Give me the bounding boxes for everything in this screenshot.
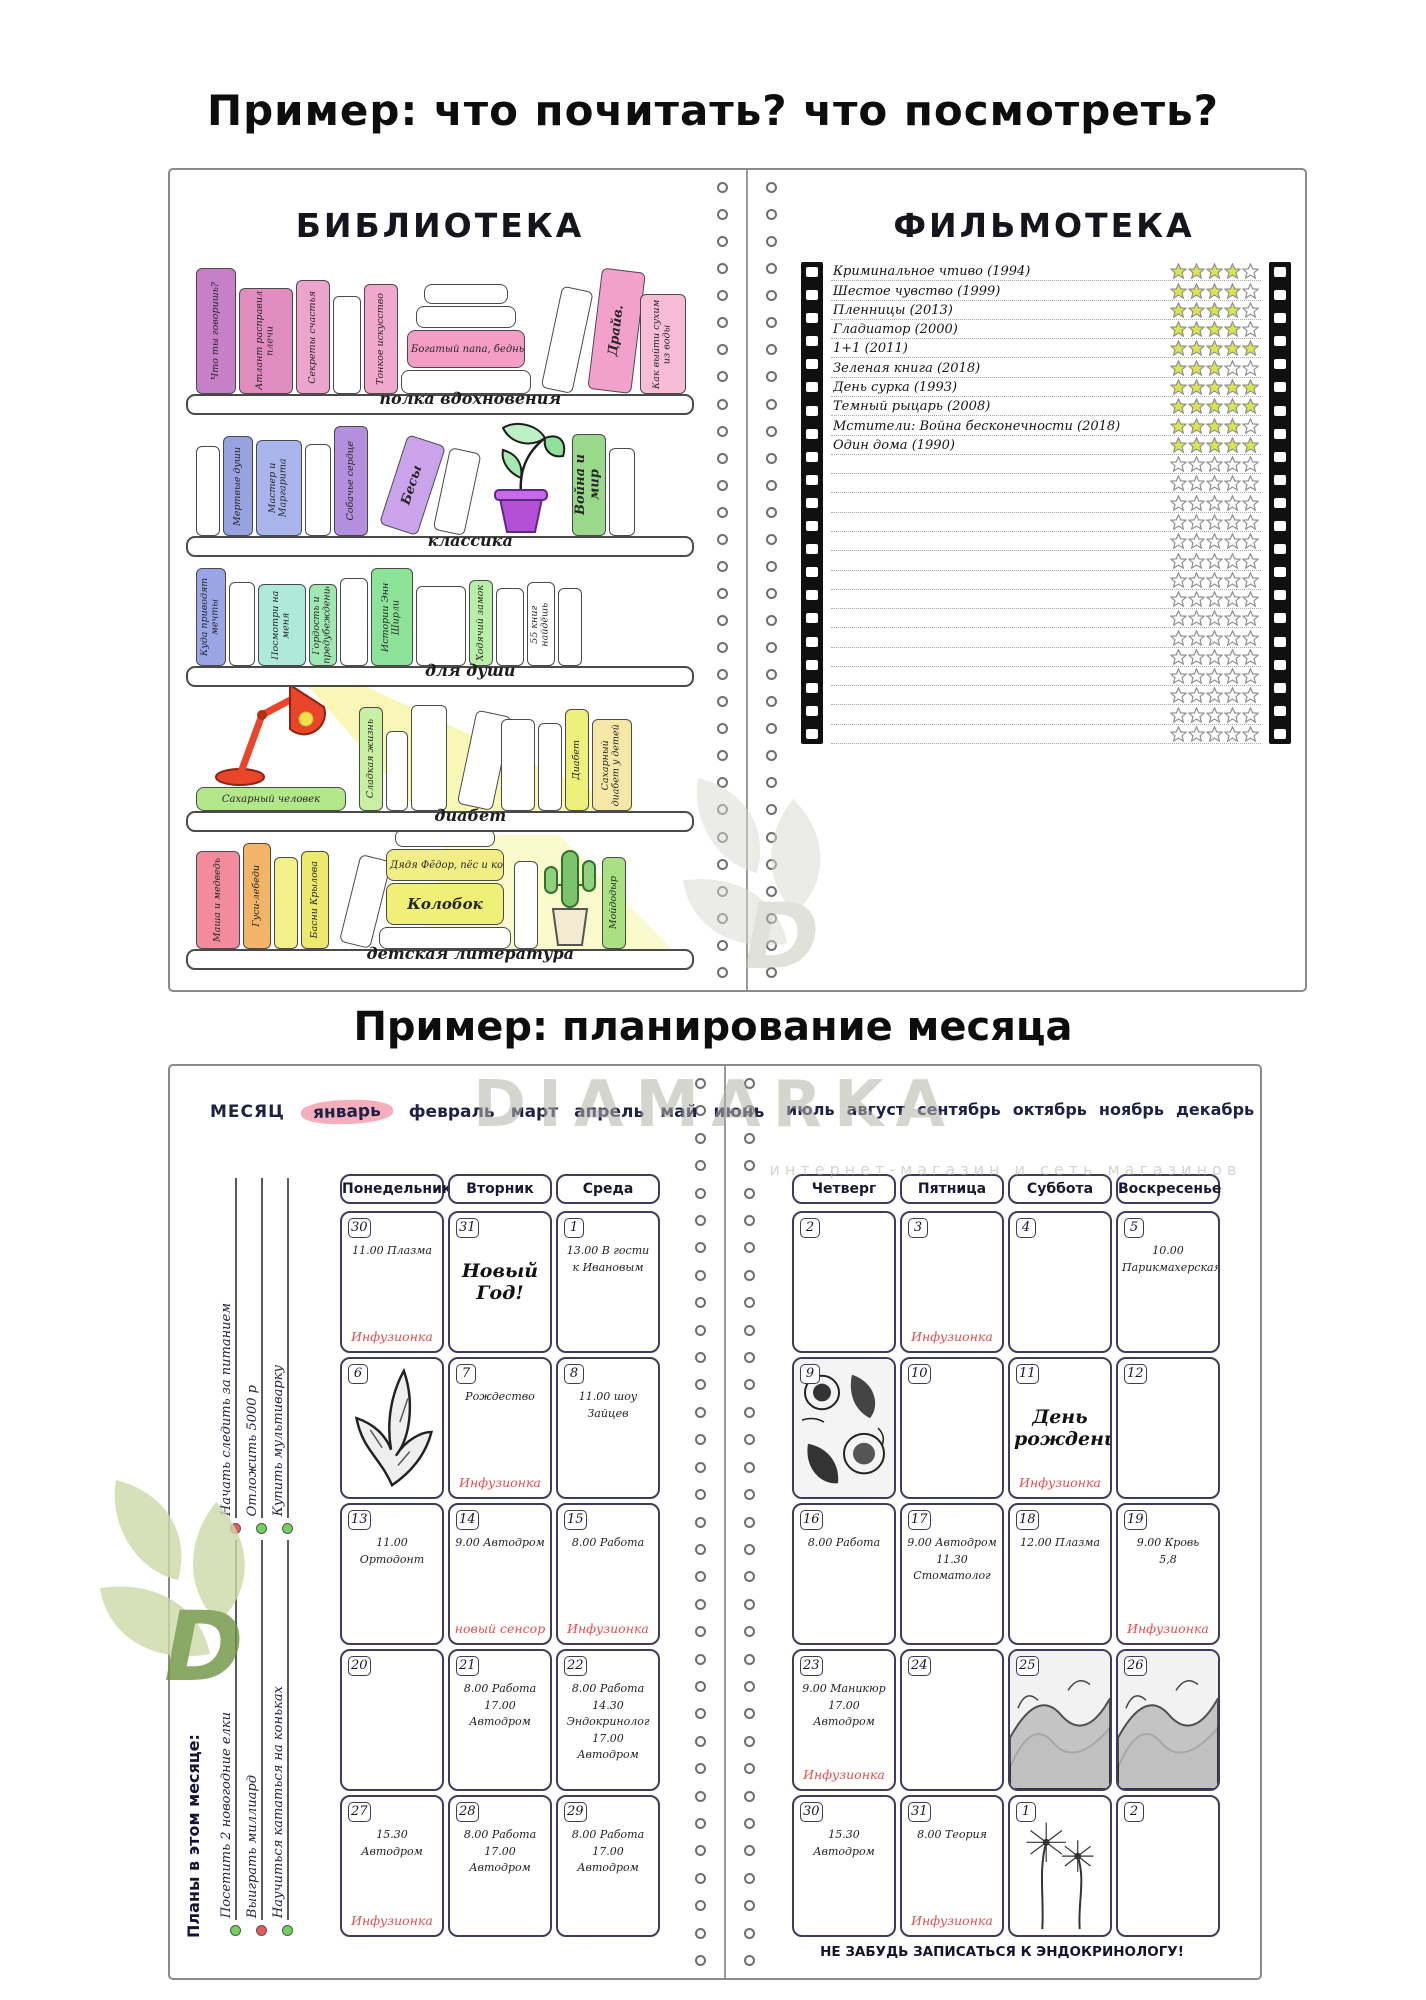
day-entries: Рождество	[454, 1389, 546, 1406]
book-spine	[196, 446, 220, 536]
star-empty-icon	[1224, 360, 1241, 376]
month-item: май	[660, 1102, 697, 1122]
star-rating	[1170, 398, 1259, 414]
day-entry: 17.00 Автодром	[798, 1698, 890, 1731]
film-perforation	[806, 729, 818, 739]
book-spine: Мастер и Маргарита	[256, 440, 302, 536]
binding-hole	[744, 1078, 755, 1089]
movie-title: День сурка (1993)	[833, 380, 1164, 395]
movie-title: Темный рыцарь (2008)	[833, 399, 1164, 414]
shelf-label: классика	[428, 531, 513, 550]
binding-hole	[766, 507, 777, 518]
star-empty-icon	[1206, 514, 1223, 530]
month-item: август	[847, 1100, 905, 1119]
book-spine: Гуси-лебеди	[243, 843, 271, 949]
film-perforation	[1274, 590, 1286, 600]
film-perforation	[806, 406, 818, 416]
date-badge: 2	[1124, 1802, 1144, 1822]
binding-hole	[766, 453, 777, 464]
film-perforation	[1274, 706, 1286, 716]
bookshelf-row: Мертвые душиМастер и МаргаритаСобачье се…	[186, 424, 694, 557]
binding-hole	[766, 642, 777, 653]
binding-hole	[717, 615, 728, 626]
film-perforation	[1274, 475, 1286, 485]
binding-hole	[695, 1626, 706, 1637]
movie-row: Зеленая книга (2018)	[831, 358, 1261, 377]
filmoteka-title: ФИЛЬМОТЕКА	[783, 206, 1305, 245]
shelf-bar: диабет	[186, 811, 694, 832]
movie-row	[831, 628, 1261, 647]
binding-hole	[766, 804, 777, 815]
plant-pot-icon	[473, 418, 569, 536]
calendar-day-cell: 318.00 ТеорияИнфузионка	[900, 1795, 1004, 1937]
binding-hole	[766, 344, 777, 355]
star-filled-icon	[1170, 379, 1187, 395]
star-rating	[1170, 533, 1259, 549]
calendar-day-cell: 12	[1116, 1357, 1220, 1499]
book-spine: Война и мир	[572, 434, 606, 536]
binding-hole	[744, 1818, 755, 1829]
binding-hole	[744, 1215, 755, 1226]
binding-hole	[695, 1873, 706, 1884]
day-entry: 10.00 Парикмахерская	[1122, 1243, 1214, 1276]
film-perforation	[1274, 521, 1286, 531]
binding-hole	[766, 940, 777, 951]
binding-hole	[717, 669, 728, 680]
day-entry: 17.00 Автодром	[562, 1731, 654, 1764]
binding-hole	[717, 371, 728, 382]
holiday-note: День рождения!	[1014, 1406, 1106, 1450]
star-empty-icon	[1224, 533, 1241, 549]
binding-hole	[766, 832, 777, 843]
calendar-day-cell: 158.00 РаботаИнфузионка	[556, 1503, 660, 1645]
binding-holes	[695, 1078, 706, 1966]
film-perforation	[1274, 290, 1286, 300]
star-filled-icon	[1170, 263, 1187, 279]
star-rating	[1170, 630, 1259, 646]
date-badge: 22	[564, 1656, 587, 1676]
star-empty-icon	[1170, 591, 1187, 607]
movie-title: Криминальное чтиво (1994)	[833, 264, 1164, 279]
movie-title: Мстители: Война бесконечности (2018)	[833, 419, 1164, 434]
binding-hole	[695, 1955, 706, 1966]
star-empty-icon	[1206, 668, 1223, 684]
film-perforation	[806, 382, 818, 392]
book-spine: Истории Энн Ширли	[371, 568, 413, 666]
day-entry: 15.30 Автодром	[798, 1827, 890, 1860]
film-perforation	[1274, 613, 1286, 623]
movie-list-area: Криминальное чтиво (1994)Шестое чувство …	[801, 262, 1291, 744]
book-title: Сахарный диабет у детей	[601, 722, 622, 808]
binding-hole	[744, 1160, 755, 1171]
binding-hole	[717, 588, 728, 599]
recurring-note: Инфузионка	[902, 1329, 1002, 1344]
recurring-note: новый сенсор	[450, 1621, 550, 1636]
months-row-right: июльавгустсентябрьоктябрьноябрьдекабрь	[786, 1100, 1254, 1119]
star-rating	[1170, 418, 1259, 434]
shelf-books: Куда приводят мечтыПосмотри на меняГордо…	[186, 566, 694, 666]
star-empty-icon	[1188, 687, 1205, 703]
month-item: ноябрь	[1099, 1100, 1164, 1119]
binding-hole	[744, 1599, 755, 1610]
date-badge: 31	[456, 1218, 479, 1238]
calendar-day-cell: 168.00 Работа	[792, 1503, 896, 1645]
date-badge: 1	[564, 1218, 584, 1238]
star-rating	[1170, 649, 1259, 665]
recurring-note: Инфузионка	[558, 1621, 658, 1636]
movie-row: Пленницы (2013)	[831, 301, 1261, 320]
movie-row	[831, 648, 1261, 667]
recurring-note: Инфузионка	[342, 1329, 442, 1344]
film-perforation	[806, 706, 818, 716]
star-filled-icon	[1170, 398, 1187, 414]
binding-hole	[695, 1489, 706, 1500]
star-rating	[1170, 475, 1259, 491]
date-badge: 6	[348, 1364, 368, 1384]
binding-hole	[695, 1736, 706, 1747]
filmoteka-page: ФИЛЬМОТЕКА Криминальное чтиво (1994)Шест…	[783, 170, 1305, 990]
planner-spread: DIAMARKA интернет-магазин и сеть магазин…	[168, 1064, 1262, 1980]
film-perforation	[1274, 544, 1286, 554]
day-entry: 8.00 Работа	[454, 1827, 546, 1844]
calendar-day-cell: 113.00 В гости к Ивановым	[556, 1211, 660, 1353]
binding-hole	[695, 1270, 706, 1281]
movie-title: Шестое чувство (1999)	[833, 284, 1164, 299]
date-badge: 3	[908, 1218, 928, 1238]
book-spine: Мертвые души	[223, 436, 253, 536]
star-rating	[1170, 726, 1259, 742]
book-spine: Собачье сердце	[334, 426, 368, 536]
date-badge: 13	[348, 1510, 371, 1530]
binding-hole	[744, 1626, 755, 1637]
binding-hole	[717, 507, 728, 518]
binding-hole	[766, 669, 777, 680]
movie-row	[831, 455, 1261, 474]
star-empty-icon	[1170, 610, 1187, 626]
star-empty-icon	[1170, 475, 1187, 491]
movie-row	[831, 551, 1261, 570]
book-spine	[229, 582, 255, 666]
star-empty-icon	[1224, 495, 1241, 511]
star-empty-icon	[1242, 321, 1259, 337]
book-title: Тонкое искусство	[376, 293, 387, 385]
book-title: Сахарный человек	[219, 794, 323, 805]
book-spine	[501, 719, 535, 811]
star-empty-icon	[1242, 514, 1259, 530]
binding-hole	[766, 913, 777, 924]
month-item: январь	[300, 1098, 393, 1125]
day-entries: 15.30 Автодром	[346, 1827, 438, 1860]
star-empty-icon	[1170, 514, 1187, 530]
day-entry: 8.00 Работа	[562, 1535, 654, 1552]
calendar-day-cell: 9	[792, 1357, 896, 1499]
shelf-label: полка вдохновения	[379, 389, 561, 408]
movie-list: Криминальное чтиво (1994)Шестое чувство …	[831, 262, 1261, 744]
day-entry: 17.00 Автодром	[454, 1844, 546, 1877]
calendar-day-cell: 4	[1008, 1211, 1112, 1353]
book-spine: Куда приводят мечты	[196, 568, 226, 666]
book-stack: Богатый папа, бедный папа	[401, 284, 531, 394]
book-title: Война и мир	[574, 437, 603, 533]
book-title: Секреты счастья	[308, 291, 319, 384]
month-item: декабрь	[1176, 1100, 1254, 1119]
desk-lamp-group: Сахарный человек	[196, 696, 356, 811]
star-empty-icon	[1242, 456, 1259, 472]
star-filled-icon	[1188, 360, 1205, 376]
star-filled-icon	[1224, 283, 1241, 299]
calendar-day-cell: 2	[792, 1211, 896, 1353]
star-rating	[1170, 591, 1259, 607]
movie-row: Гладиатор (2000)	[831, 320, 1261, 339]
star-filled-icon	[1188, 321, 1205, 337]
day-entries: 11.00 Ортодонт	[346, 1535, 438, 1568]
binding-hole	[744, 1708, 755, 1719]
binding-hole	[744, 1955, 755, 1966]
binding-hole	[744, 1736, 755, 1747]
star-filled-icon	[1242, 437, 1259, 453]
star-empty-icon	[1188, 649, 1205, 665]
book-title: Дядя Фёдор, пёс и кот	[387, 860, 503, 871]
shelf-bar: детская литература	[186, 949, 694, 970]
binding-hole	[695, 1379, 706, 1390]
star-filled-icon	[1224, 437, 1241, 453]
star-rating	[1170, 553, 1259, 569]
film-perforation	[806, 313, 818, 323]
day-header: Воскресенье	[1116, 1174, 1220, 1204]
binding-hole	[744, 1544, 755, 1555]
movie-row	[831, 513, 1261, 532]
star-empty-icon	[1188, 533, 1205, 549]
movie-row: Мстители: Война бесконечности (2018)	[831, 416, 1261, 435]
binding-holes	[744, 1078, 755, 1966]
recurring-note: Инфузионка	[450, 1475, 550, 1490]
bookshelf-row: Куда приводят мечтыПосмотри на меняГордо…	[186, 566, 694, 687]
book-title: Ходячий замок	[476, 585, 487, 661]
star-empty-icon	[1170, 533, 1187, 549]
star-empty-icon	[1242, 610, 1259, 626]
binding-holes	[717, 182, 728, 978]
star-empty-icon	[1224, 456, 1241, 472]
book-title: Посмотри на меня	[271, 587, 292, 664]
star-empty-icon	[1188, 591, 1205, 607]
binding-hole	[766, 290, 777, 301]
day-entries: 10.00 Парикмахерская	[1122, 1243, 1214, 1276]
date-badge: 10	[908, 1364, 931, 1384]
day-entry: 9.00 Маникюр	[798, 1681, 890, 1698]
star-rating	[1170, 707, 1259, 723]
star-filled-icon	[1188, 379, 1205, 395]
star-empty-icon	[1242, 263, 1259, 279]
month-item: июль	[786, 1100, 835, 1119]
star-empty-icon	[1206, 533, 1223, 549]
month-item: февраль	[409, 1102, 495, 1122]
calendar-day-cell: 7РождествоИнфузионка	[448, 1357, 552, 1499]
shelf-bar: полка вдохновения	[186, 394, 694, 415]
calendar-day-cell: 1	[1008, 1795, 1112, 1937]
day-entry: 11.00 шоу Зайцев	[562, 1389, 654, 1422]
book-spine: Что ты говоришь?	[196, 268, 236, 394]
day-entry: 17.00 Автодром	[562, 1844, 654, 1877]
binding-hole	[766, 426, 777, 437]
binding-hole	[766, 777, 777, 788]
binding-hole	[744, 1462, 755, 1473]
book-spine	[333, 296, 361, 394]
star-empty-icon	[1206, 610, 1223, 626]
holiday-note: Новый Год!	[454, 1260, 546, 1304]
calendar-day-cell: 11День рождения!Инфузионка	[1008, 1357, 1112, 1499]
binding-hole	[717, 344, 728, 355]
film-perforation	[1274, 429, 1286, 439]
movie-row	[831, 571, 1261, 590]
day-header: Суббота	[1008, 1174, 1112, 1204]
binding-hole	[766, 859, 777, 870]
calendar-day-cell: 24	[900, 1649, 1004, 1791]
binding-hole	[717, 534, 728, 545]
star-filled-icon	[1224, 398, 1241, 414]
date-badge: 23	[800, 1656, 823, 1676]
day-header: Среда	[556, 1174, 660, 1204]
binding-hole	[717, 426, 728, 437]
film-perforation	[1274, 729, 1286, 739]
day-entries: 8.00 Работа	[562, 1535, 654, 1552]
book-spine: Маша и медведь	[196, 851, 240, 949]
calendar-day-cell: 239.00 Маникюр17.00 АвтодромИнфузионка	[792, 1649, 896, 1791]
book-spine	[538, 723, 562, 811]
bookshelf-row: Сахарный человекСладкая жизньДиабетСахар…	[186, 696, 694, 832]
binding-hole	[766, 534, 777, 545]
binding-hole	[717, 480, 728, 491]
film-perforation	[806, 590, 818, 600]
binding-hole	[717, 263, 728, 274]
book-title: Драйв.	[606, 304, 627, 357]
day-entry: 9.00 Автодром	[906, 1535, 998, 1552]
binding-hole	[744, 1654, 755, 1665]
library-title: БИБЛИОТЕКА	[170, 206, 710, 245]
film-perforation	[806, 336, 818, 346]
star-rating	[1170, 360, 1259, 376]
film-strip-icon	[801, 262, 823, 744]
book-title: Богатый папа, бедный папа	[408, 344, 524, 355]
binding-hole	[695, 1791, 706, 1802]
star-rating	[1170, 514, 1259, 530]
month-item: сентябрь	[917, 1100, 1001, 1119]
film-perforation	[806, 475, 818, 485]
calendar-day-cell: 3Инфузионка	[900, 1211, 1004, 1353]
star-empty-icon	[1170, 649, 1187, 665]
book-title: Маша и медведь	[213, 858, 224, 942]
binding-hole	[766, 236, 777, 247]
book-spine: Басни Крылова	[301, 851, 329, 949]
date-badge: 26	[1124, 1656, 1147, 1676]
binding-hole	[717, 940, 728, 951]
star-filled-icon	[1206, 398, 1223, 414]
book-title: Басни Крылова	[310, 861, 321, 939]
movie-row	[831, 609, 1261, 628]
book-spine	[340, 578, 368, 666]
date-badge: 2	[800, 1218, 820, 1238]
book-spine: Посмотри на меня	[258, 584, 306, 666]
star-empty-icon	[1224, 514, 1241, 530]
date-badge: 11	[1016, 1364, 1039, 1384]
date-badge: 17	[908, 1510, 931, 1530]
book-spine	[386, 731, 408, 811]
day-entry: 8.00 Работа	[798, 1535, 890, 1552]
film-perforation	[806, 359, 818, 369]
shelf-label: детская литература	[366, 944, 574, 963]
film-perforation	[1274, 637, 1286, 647]
calendar-day-cell: 26	[1116, 1649, 1220, 1791]
day-entries: 9.00 Автодром	[454, 1535, 546, 1552]
date-badge: 4	[1016, 1218, 1036, 1238]
day-entry: 8.00 Работа	[562, 1681, 654, 1698]
star-empty-icon	[1206, 456, 1223, 472]
star-empty-icon	[1170, 456, 1187, 472]
star-empty-icon	[1170, 707, 1187, 723]
planner-promo-page: Пример: что почитать? что посмотреть? БИ…	[0, 0, 1426, 2000]
shelf-label: диабет	[434, 806, 506, 825]
book-spine	[609, 448, 635, 536]
day-header: Пятница	[900, 1174, 1004, 1204]
day-entry: 8.00 Работа	[454, 1681, 546, 1698]
date-badge: 28	[456, 1802, 479, 1822]
day-entries: 11.00 шоу Зайцев	[562, 1389, 654, 1422]
day-entries: 13.00 В гости к Ивановым	[562, 1243, 654, 1276]
binding-hole	[766, 209, 777, 220]
movie-row: День сурка (1993)	[831, 378, 1261, 397]
binding-hole	[744, 1681, 755, 1692]
binding-hole	[695, 1845, 706, 1856]
book-spine	[424, 284, 508, 304]
binding-hole	[766, 615, 777, 626]
calendar-day-cell: 2	[1116, 1795, 1220, 1937]
book-title: Мастер и Маргарита	[268, 443, 289, 533]
film-perforation	[1274, 498, 1286, 508]
film-perforation	[1274, 359, 1286, 369]
film-perforation	[1274, 267, 1286, 277]
book-spine	[416, 586, 466, 666]
binding-hole	[717, 696, 728, 707]
binding-hole	[744, 1133, 755, 1144]
day-entry: Рождество	[454, 1389, 546, 1406]
date-badge: 27	[348, 1802, 371, 1822]
day-entry: 8.00 Работа	[562, 1827, 654, 1844]
date-badge: 24	[908, 1656, 931, 1676]
film-perforation	[806, 498, 818, 508]
star-empty-icon	[1206, 495, 1223, 511]
film-perforation	[1274, 660, 1286, 670]
book-spine: Как выйти сухим из воды	[640, 294, 686, 394]
star-empty-icon	[1242, 475, 1259, 491]
star-rating	[1170, 437, 1259, 453]
binding-hole	[744, 1434, 755, 1445]
month-item: март	[511, 1102, 558, 1122]
star-empty-icon	[1188, 475, 1205, 491]
month-item: апрель	[574, 1102, 644, 1122]
star-empty-icon	[1224, 591, 1241, 607]
calendar-day-cell: 3011.00 ПлазмаИнфузионка	[340, 1211, 444, 1353]
star-empty-icon	[1170, 572, 1187, 588]
calendar-day-cell: 811.00 шоу Зайцев	[556, 1357, 660, 1499]
star-filled-icon	[1206, 418, 1223, 434]
star-empty-icon	[1206, 630, 1223, 646]
book-spine: Драйв.	[587, 268, 646, 394]
book-stack: Дядя Фёдор, пёс и котКолобок	[379, 829, 511, 949]
book-title: Собачье сердце	[346, 441, 357, 520]
binding-hole	[717, 832, 728, 843]
binding-hole	[744, 1242, 755, 1253]
calendar-day-cell: 288.00 Работа17.00 Автодром	[448, 1795, 552, 1937]
film-perforation	[1274, 567, 1286, 577]
